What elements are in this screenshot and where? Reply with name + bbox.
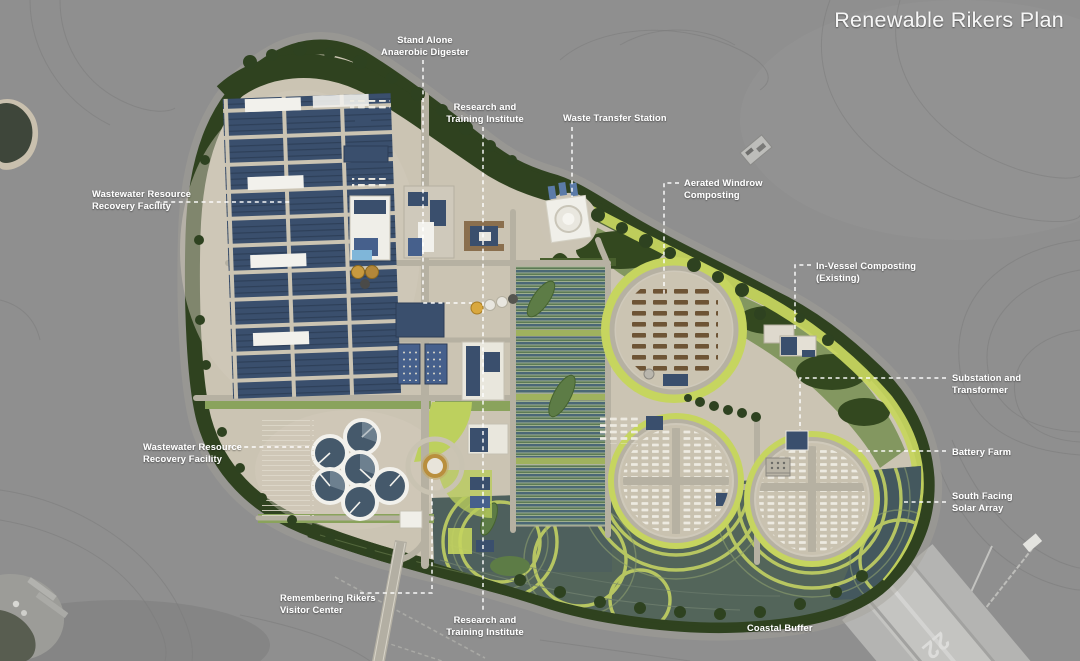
label-research-training-bottom-1: Research and: [454, 615, 517, 625]
label-wwrf-south-2: Recovery Facility: [143, 454, 223, 464]
label-wwrf-north-2: Recovery Facility: [92, 201, 172, 211]
research-institute-north-building: [464, 221, 505, 251]
label-stand-alone-digester-1: Stand Alone: [397, 35, 453, 45]
label-substation-1: Substation and: [952, 373, 1021, 383]
site-plan-svg: 22: [0, 0, 1080, 661]
label-in-vessel-2: (Existing): [816, 273, 860, 283]
label-remembering-rikers-1: Remembering Rikers: [280, 593, 376, 603]
label-south-solar-2: Solar Array: [952, 503, 1004, 513]
remembering-rikers-memorial-ring: [421, 452, 449, 480]
parking-lot: [262, 420, 314, 516]
label-coastal-buffer: Coastal Buffer: [747, 623, 813, 633]
label-remembering-rikers-2: Visitor Center: [280, 605, 343, 615]
label-waste-transfer: Waste Transfer Station: [563, 113, 667, 123]
label-research-training-top-1: Research and: [454, 102, 517, 112]
label-research-training-bottom-2: Training Institute: [446, 627, 524, 637]
label-stand-alone-digester-2: Anaerobic Digester: [381, 47, 469, 57]
aerated-windrow-composting-pad: [601, 257, 747, 403]
label-aerated-windrow-1: Aerated Windrow: [684, 178, 763, 188]
label-south-solar-1: South Facing: [952, 491, 1013, 501]
label-substation-2: Transformer: [952, 385, 1008, 395]
renewable-rikers-plan-map: 22: [0, 0, 1080, 661]
page-title: Renewable Rikers Plan: [834, 8, 1064, 32]
label-battery-farm: Battery Farm: [952, 447, 1011, 457]
label-in-vessel-1: In-Vessel Composting: [816, 261, 916, 271]
label-aerated-windrow-2: Composting: [684, 190, 740, 200]
label-research-training-top-2: Training Institute: [446, 114, 524, 124]
label-wwrf-south-1: Wastewater Resource: [143, 442, 242, 452]
label-wwrf-north-1: Wastewater Resource: [92, 189, 191, 199]
